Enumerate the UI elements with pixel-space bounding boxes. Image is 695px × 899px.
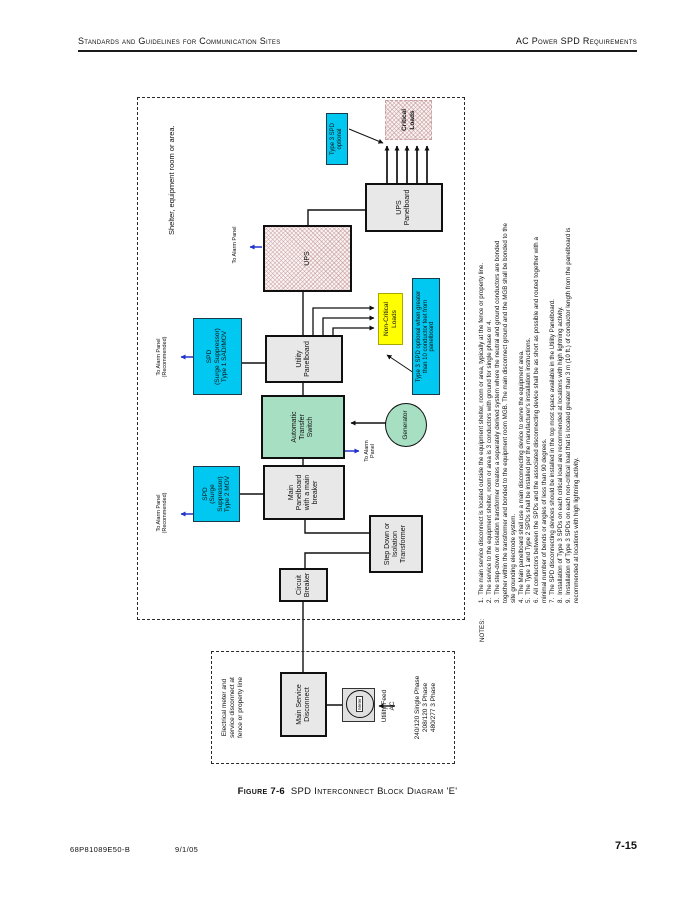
spd2-alarm-label: To Alarm Panel (Recommended) (156, 487, 169, 539)
document-page: Standards and Guidelines for Communicati… (0, 0, 695, 899)
non-critical-loads-box: Non-Critical Loads (378, 293, 403, 345)
meter-label: Meter (356, 696, 363, 712)
footer-date: 9/1/05 (175, 845, 198, 854)
footer-page-number: 7-15 (615, 840, 637, 852)
figure-caption-label: Figure 7-6 (238, 786, 285, 797)
note-item: 9.Installation of Type 3 SPDs on each no… (565, 221, 581, 603)
header-left: Standards and Guidelines for Communicati… (78, 36, 281, 46)
header-rule (78, 50, 637, 52)
note-item: 5.The Type 1 and Type 2 SPDs shall be in… (525, 221, 533, 603)
utility-panelboard-box: Utility Panelboard (265, 335, 343, 383)
spd-type2-box: SPD (Surge Suppressor) Type 2 MOV (193, 466, 240, 522)
ups-panelboard-box: UPS Panelboard (365, 183, 443, 232)
spd-type1-box: SPD (Surge Suppressor) Type 1 SAD/MOV (193, 318, 242, 395)
ups-box: UPS (263, 225, 352, 292)
meter-dial: Meter (346, 690, 374, 718)
ats-box: Automatic Transfer Switch (261, 395, 345, 459)
spd1-alarm-label: To Alarm Panel (Recommended) (156, 331, 169, 383)
meter-box: Meter (342, 688, 375, 722)
header-right: AC Power SPD Requirements (516, 36, 637, 46)
note-item: 1.The main service disconnect is located… (478, 221, 486, 603)
main-panelboard-box: Main Panelboard with a main breaker (263, 465, 345, 520)
note-item: 2.The service to the equipment shelter, … (486, 221, 494, 603)
transformer-box: Step Down or Isolation Transformer (369, 515, 423, 573)
ats-alarm-label: To Alarm Panel (364, 429, 377, 473)
figure-caption-title: SPD Interconnect Block Diagram 'E' (291, 786, 457, 797)
notes-label: NOTES: (479, 604, 487, 642)
spd-block-diagram: Shelter, equipment room or area. Electri… (125, 95, 635, 775)
notes-list: 1.The main service disconnect is located… (478, 221, 581, 603)
type3-optional-box: Type 3 SPD optional (326, 113, 348, 165)
note-item: 4.The Main panelboard shall use a main d… (518, 221, 526, 603)
figure-area: Shelter, equipment room or area. Electri… (125, 95, 635, 775)
utility-feed-label: Utility Feed AC (381, 673, 397, 739)
fence-label: Electrical meter and service disconnect … (221, 651, 245, 764)
note-item: 3.The step-down or isolation transformer… (494, 221, 518, 603)
generator-circle: Generator (385, 403, 427, 447)
note-item: 8.Installation of Type 3 SPDs on each cr… (557, 221, 565, 603)
note-item: 6.All conductors between the SPDs and th… (533, 221, 549, 603)
main-service-disconnect-box: Main Service Disconnect (280, 672, 327, 737)
critical-loads-box: Critical Loads (385, 100, 432, 140)
footer-doc-number: 68P81089E50-B (70, 845, 130, 854)
circuit-breaker-box: Circuit Breaker (279, 568, 328, 602)
phase-options-label: 240/120 Single Phase 208/120 3 Phase 480… (414, 651, 438, 764)
note-item: 7.The SPD disconnecting devices should b… (549, 221, 557, 603)
figure-caption: Figure 7-6 SPD Interconnect Block Diagra… (0, 786, 695, 797)
ups-alarm-label: To Alarm Panel (232, 217, 238, 273)
shelter-label: Shelter, equipment room or area. (167, 95, 176, 235)
type3-when-greater-box: Type 3 SPD optional when greater than 10… (412, 278, 440, 395)
